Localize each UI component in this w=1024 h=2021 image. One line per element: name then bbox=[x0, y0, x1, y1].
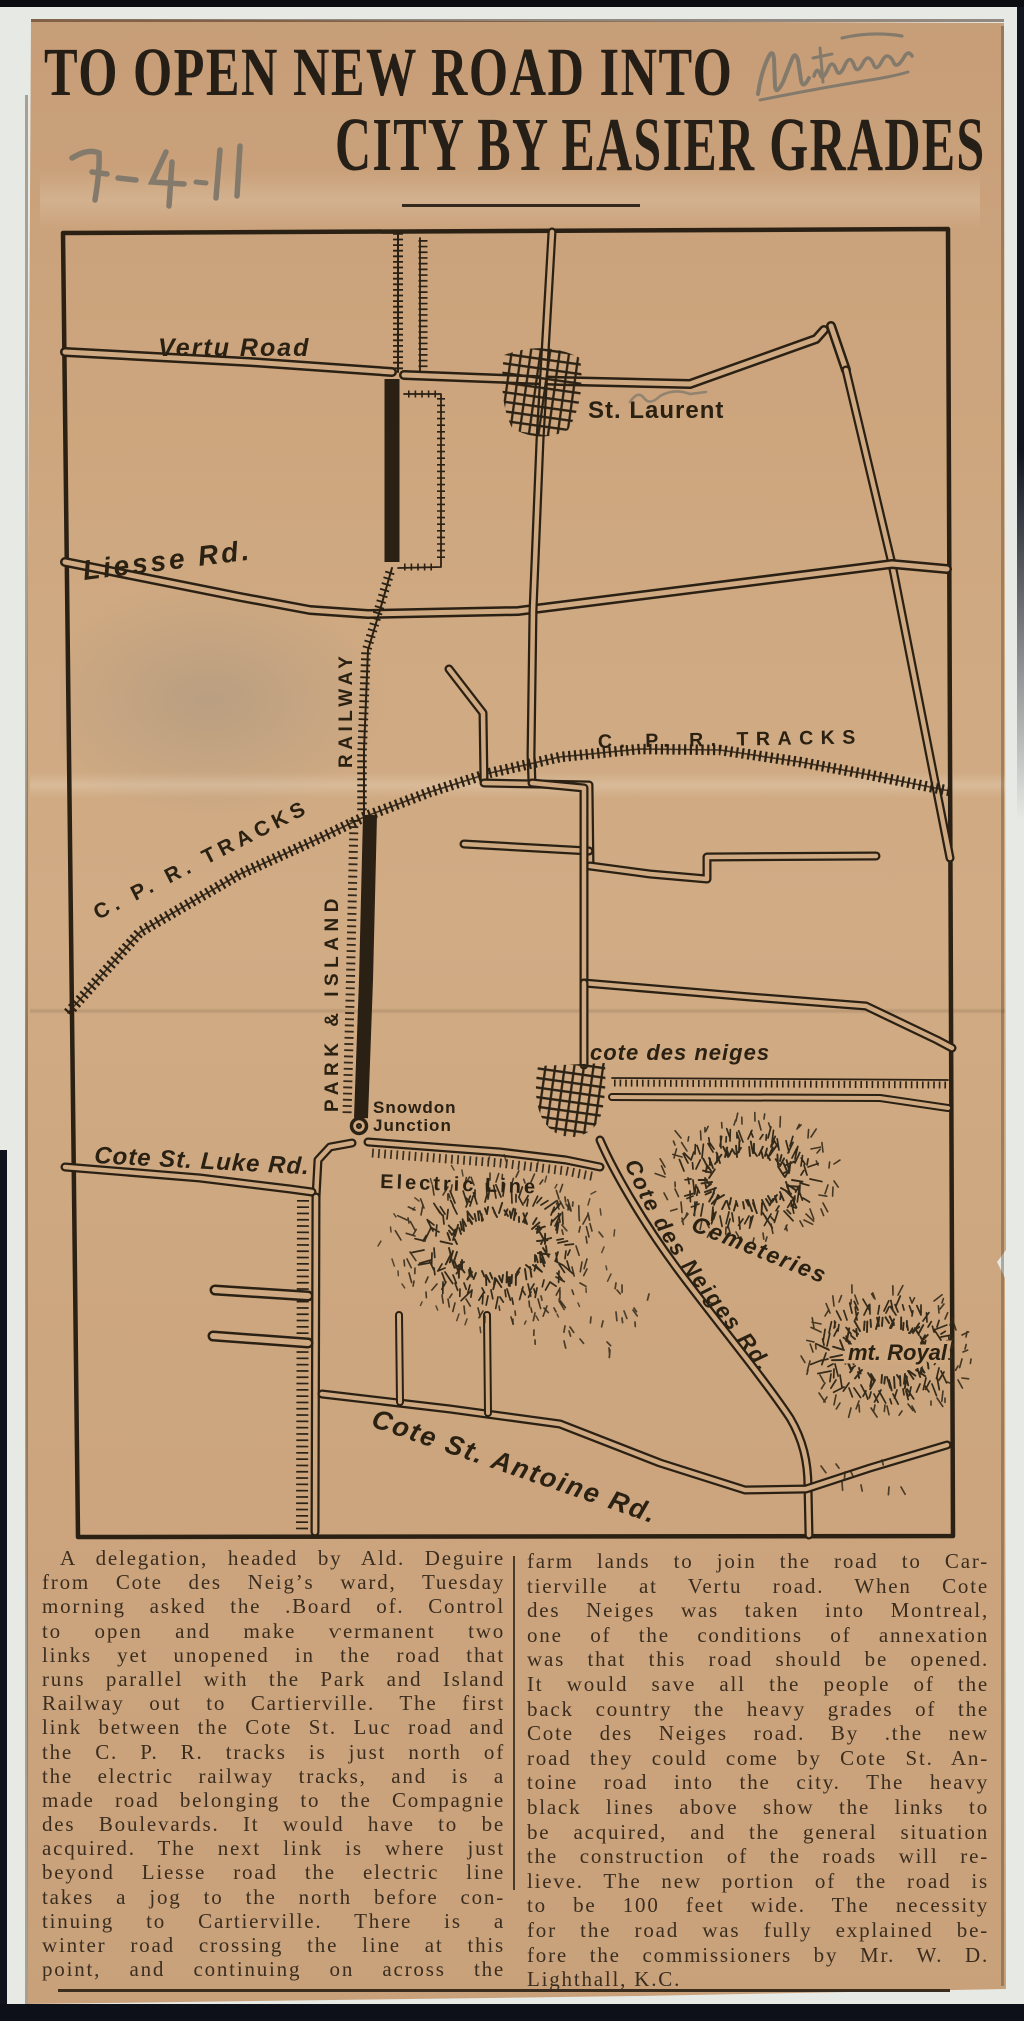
svg-text:Snowdon: Snowdon bbox=[373, 1098, 456, 1117]
svg-text:Electric Line: Electric Line bbox=[380, 1171, 539, 1198]
svg-text:Vertu Road: Vertu Road bbox=[158, 334, 310, 362]
svg-text:cote des neiges: cote des neiges bbox=[590, 1040, 770, 1065]
svg-text:Cote des Neiges Rd.: Cote des Neiges Rd. bbox=[620, 1155, 778, 1376]
svg-text:C. P. R. TRACKS: C. P. R. TRACKS bbox=[90, 795, 314, 924]
svg-text:C. P. R. TRACKS: C. P. R. TRACKS bbox=[598, 726, 863, 753]
svg-text:PARK & ISLAND: PARK & ISLAND bbox=[322, 893, 343, 1112]
svg-text:St. Laurent: St. Laurent bbox=[588, 397, 724, 424]
svg-text:Junction: Junction bbox=[373, 1116, 452, 1135]
svg-text:mt. Royal: mt. Royal bbox=[848, 1340, 948, 1365]
svg-text:RAILWAY: RAILWAY bbox=[336, 652, 357, 768]
